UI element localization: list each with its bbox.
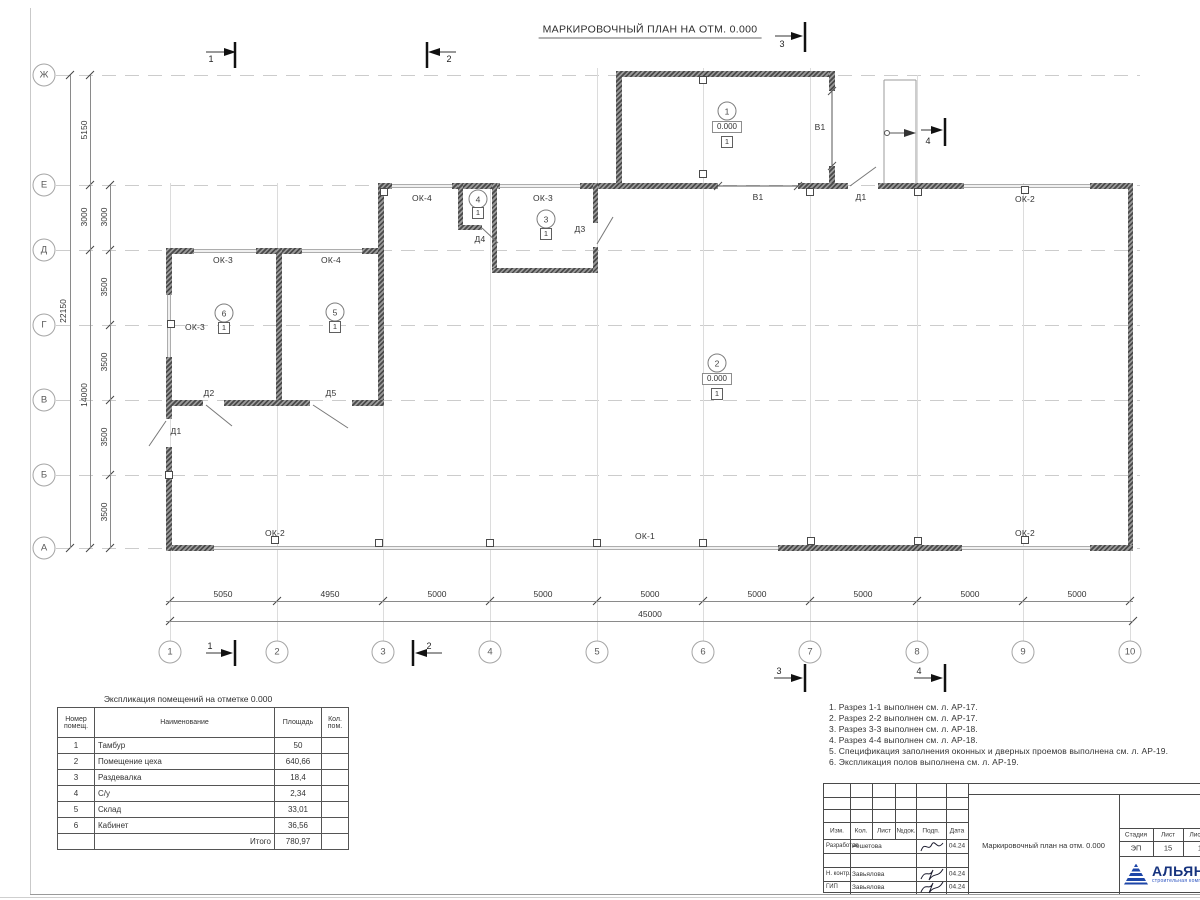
section-mark-3: 3 — [779, 39, 784, 49]
section-mark-1b: 1 — [207, 641, 212, 651]
dim-row: 3500 — [99, 353, 109, 372]
dim-span: 5000 — [961, 589, 980, 599]
section-mark-3b: 3 — [776, 666, 781, 676]
label-ok4-rooms: ОК-4 — [321, 255, 341, 265]
wall — [166, 248, 194, 254]
dim-row: 5150 — [79, 121, 89, 140]
col-axis-5: 5 — [586, 641, 609, 664]
tb-col-izm: Изм. — [830, 828, 844, 835]
canopy-outline — [884, 80, 916, 184]
dim-row: 3000 — [99, 208, 109, 227]
tb-date: 04.24 — [949, 843, 965, 850]
wall — [593, 247, 598, 273]
tb-name: Решетова — [852, 843, 882, 850]
dim-row: 3500 — [99, 503, 109, 522]
column-marker — [593, 539, 601, 547]
axis-line-6 — [703, 68, 704, 641]
wall — [778, 545, 962, 551]
room-1-number: 1 — [718, 102, 737, 121]
room-5-floor-type: 1 — [329, 321, 341, 333]
label-v1-bottom: В1 — [753, 192, 764, 202]
logo-company-name: АЛЬЯНС — [1152, 865, 1200, 878]
legend-row: 2Помещение цеха640,66 — [58, 754, 349, 770]
column-marker — [486, 539, 494, 547]
wall — [492, 183, 497, 273]
row-axis-e: Е — [33, 174, 56, 197]
col-axis-8: 8 — [906, 641, 929, 664]
legend-row: 3Раздевалка18,4 — [58, 770, 349, 786]
tb-sheet-label: Лист — [1161, 832, 1175, 839]
label-ok3: ОК-3 — [533, 193, 553, 203]
note-line: 1. Разрез 1-1 выполнен см. л. АР-17. — [829, 702, 1168, 713]
dim-span: 5000 — [1068, 589, 1087, 599]
wall — [276, 248, 282, 406]
col-axis-10: 10 — [1119, 641, 1142, 664]
dim-line-left-1 — [70, 75, 71, 548]
tb-doc-title: Маркировочный план на отм. 0.000 — [968, 841, 1119, 850]
row-axis-v: В — [33, 389, 56, 412]
dim-row: 3500 — [99, 278, 109, 297]
legend-total-row: Итого780,97 — [58, 834, 349, 850]
wall — [166, 248, 172, 295]
dim-span: 5000 — [748, 589, 767, 599]
dim-row: 14000 — [79, 383, 89, 407]
section-mark-4b: 4 — [916, 666, 921, 676]
axis-line-zh — [56, 75, 1140, 76]
room-3-number: 3 — [537, 210, 556, 229]
tb-col-kol: Кол. — [855, 828, 868, 835]
section-mark-1: 1 — [208, 54, 213, 64]
title-block: Изм. Кол. Лист №док. Подп. Дата Разработ… — [823, 783, 1200, 893]
column-marker — [807, 537, 815, 545]
wall — [378, 183, 384, 406]
label-d5: Д5 — [326, 388, 337, 398]
wall — [616, 71, 622, 183]
legend-table: Номер помещ. Наименование Площадь Кол. п… — [57, 707, 349, 850]
wall — [829, 166, 835, 183]
tb-stage-value: ЭП — [1131, 844, 1142, 853]
label-ok3-leftwall: ОК-3 — [185, 322, 205, 332]
dim-total-height: 22150 — [58, 299, 68, 323]
window-ok3-top — [194, 249, 256, 253]
company-logo: АЛЬЯНС строительная компания — [1122, 856, 1200, 892]
wall — [166, 357, 172, 419]
row-axis-d: Д — [33, 239, 56, 262]
room-2-elevation: 0.000 — [702, 373, 732, 385]
logo-triangle-icon — [1124, 864, 1148, 885]
col-axis-4: 4 — [479, 641, 502, 664]
wall — [580, 183, 718, 189]
tb-role: Н. контр. — [826, 871, 851, 877]
logo-company-subtitle: строительная компания — [1152, 878, 1200, 884]
legend-header-num: Номер помещ. — [58, 708, 95, 738]
wall — [352, 400, 384, 406]
col-axis-9: 9 — [1012, 641, 1035, 664]
room-2-floor-type: 1 — [711, 388, 723, 400]
section-mark-2: 2 — [446, 54, 451, 64]
label-d4: Д4 — [475, 234, 486, 244]
legend-title: Экспликация помещений на отметке 0.000 — [104, 694, 272, 704]
label-ok1-bottom: ОК-1 — [635, 531, 655, 541]
label-ok2-bottom-right: ОК-2 — [1015, 528, 1035, 538]
drawing-title: МАРКИРОВОЧНЫЙ ПЛАН НА ОТМ. 0.000 — [539, 24, 762, 39]
dim-span: 5050 — [214, 589, 233, 599]
dim-total-width: 45000 — [638, 609, 662, 619]
dim-line-left-3 — [110, 185, 111, 548]
column-marker — [375, 539, 383, 547]
label-ok4: ОК-4 — [412, 193, 432, 203]
room-1-elevation: 0.000 — [712, 121, 742, 133]
legend-row: 4С/у2,34 — [58, 786, 349, 802]
axis-line-9 — [1023, 183, 1024, 641]
signature — [919, 839, 945, 855]
tb-name: Завьялова — [852, 871, 884, 878]
column-marker — [806, 188, 814, 196]
axis-line-7 — [810, 68, 811, 641]
note-line: 5. Спецификация заполнения оконных и две… — [829, 746, 1168, 757]
label-d3: Д3 — [575, 224, 586, 234]
section-mark-4: 4 — [925, 136, 930, 146]
wall — [1090, 183, 1133, 189]
entrance-arrow — [885, 129, 917, 137]
row-axis-g: Г — [33, 314, 56, 337]
frame-left — [30, 8, 31, 894]
tb-date: 04.24 — [949, 871, 965, 878]
row-axis-zh: Ж — [33, 64, 56, 87]
axis-line-8 — [917, 75, 918, 641]
dim-row: 3000 — [79, 208, 89, 227]
frame-bottom — [30, 894, 1200, 895]
room-6-number: 6 — [215, 304, 234, 323]
label-ok2-bottom-left: ОК-2 — [265, 528, 285, 538]
axis-line-b — [56, 475, 1140, 476]
dim-span: 5000 — [534, 589, 553, 599]
label-d1-left: Д1 — [171, 426, 182, 436]
room-5-number: 5 — [326, 303, 345, 322]
column-marker — [914, 537, 922, 545]
axis-line-v — [56, 400, 1140, 401]
tb-stage-label: Стадия — [1125, 832, 1147, 839]
wall — [166, 545, 214, 551]
wall — [1128, 183, 1133, 551]
dim-line-left-2 — [90, 75, 91, 548]
notes-list: 1. Разрез 1-1 выполнен см. л. АР-17. 2. … — [829, 702, 1168, 768]
wall — [224, 400, 310, 406]
room-4-number: 4 — [469, 190, 488, 209]
col-axis-6: 6 — [692, 641, 715, 664]
col-axis-3: 3 — [372, 641, 395, 664]
tb-col-data: Дата — [950, 828, 964, 835]
col-axis-2: 2 — [266, 641, 289, 664]
tb-sheet-value: 15 — [1164, 844, 1172, 853]
wall — [492, 268, 598, 273]
legend-header-area: Площадь — [275, 708, 322, 738]
window-strip-bottom — [962, 546, 1090, 550]
room-3-floor-type: 1 — [540, 228, 552, 240]
tb-col-list: Лист — [877, 828, 891, 835]
label-v1-right: В1 — [815, 122, 826, 132]
wall — [458, 225, 482, 230]
legend-row: 1Тамбур50 — [58, 738, 349, 754]
window-ok4-top — [302, 249, 362, 253]
room-2-number: 2 — [708, 354, 727, 373]
room-4-floor-type: 1 — [472, 207, 484, 219]
tb-date: 04.24 — [949, 884, 965, 891]
tb-name: Завьялова — [852, 884, 884, 891]
row-axis-b: Б — [33, 464, 56, 487]
column-marker — [699, 76, 707, 84]
dim-span: 4950 — [321, 589, 340, 599]
legend-header-name: Наименование — [95, 708, 275, 738]
note-line: 2. Разрез 2-2 выполнен см. л. АР-17. — [829, 713, 1168, 724]
col-axis-7: 7 — [799, 641, 822, 664]
tb-col-podp: Подп. — [922, 828, 939, 835]
wall — [166, 447, 172, 551]
dim-line-bottom-1 — [166, 601, 1133, 602]
tb-col-ndok: №док. — [896, 828, 915, 835]
column-marker — [699, 539, 707, 547]
axis-line-5 — [597, 68, 598, 641]
column-marker — [380, 188, 388, 196]
row-axis-a: А — [33, 537, 56, 560]
column-marker — [167, 320, 175, 328]
legend-header-count: Кол. пом. — [322, 708, 349, 738]
wall — [616, 71, 835, 77]
label-d1-top: Д1 — [856, 192, 867, 202]
label-d2: Д2 — [204, 388, 215, 398]
column-marker — [699, 170, 707, 178]
dim-line-bottom-2 — [166, 621, 1133, 622]
dim-span: 5000 — [428, 589, 447, 599]
dim-span: 5000 — [641, 589, 660, 599]
wall — [1090, 545, 1133, 551]
room-1-floor-type: 1 — [721, 136, 733, 148]
note-line: 3. Разрез 3-3 выполнен см. л. АР-18. — [829, 724, 1168, 735]
signature — [919, 879, 945, 895]
axis-line-4 — [490, 183, 491, 641]
window-ok4 — [392, 184, 452, 188]
window-strip-bottom — [214, 546, 778, 550]
section-mark-2b: 2 — [426, 641, 431, 651]
section-flags — [206, 22, 945, 692]
legend-row: 5Склад33,01 — [58, 802, 349, 818]
sheet-edge — [0, 897, 1200, 898]
room-6-floor-type: 1 — [218, 322, 230, 334]
wall — [829, 71, 835, 91]
drawing-sheet: МАРКИРОВОЧНЫЙ ПЛАН НА ОТМ. 0.000 Ж Е Д Г… — [0, 0, 1200, 900]
dim-span: 5000 — [854, 589, 873, 599]
col-axis-1: 1 — [159, 641, 182, 664]
dim-row: 3500 — [99, 428, 109, 447]
label-ok2: ОК-2 — [1015, 194, 1035, 204]
label-ok3-rooms: ОК-3 — [213, 255, 233, 265]
wall — [593, 183, 598, 223]
wall — [166, 400, 203, 406]
column-marker — [914, 188, 922, 196]
wall — [458, 183, 463, 230]
legend-row: 6Кабинет36,56 — [58, 818, 349, 834]
column-marker — [165, 471, 173, 479]
note-line: 4. Разрез 4-4 выполнен см. л. АР-18. — [829, 735, 1168, 746]
tb-sheets-label: Листов — [1189, 832, 1200, 839]
window-ok3 — [500, 184, 580, 188]
tb-role: ГИП — [826, 884, 838, 890]
column-marker — [1021, 186, 1029, 194]
note-line: 6. Экспликация полов выполнена см. л. АР… — [829, 757, 1168, 768]
